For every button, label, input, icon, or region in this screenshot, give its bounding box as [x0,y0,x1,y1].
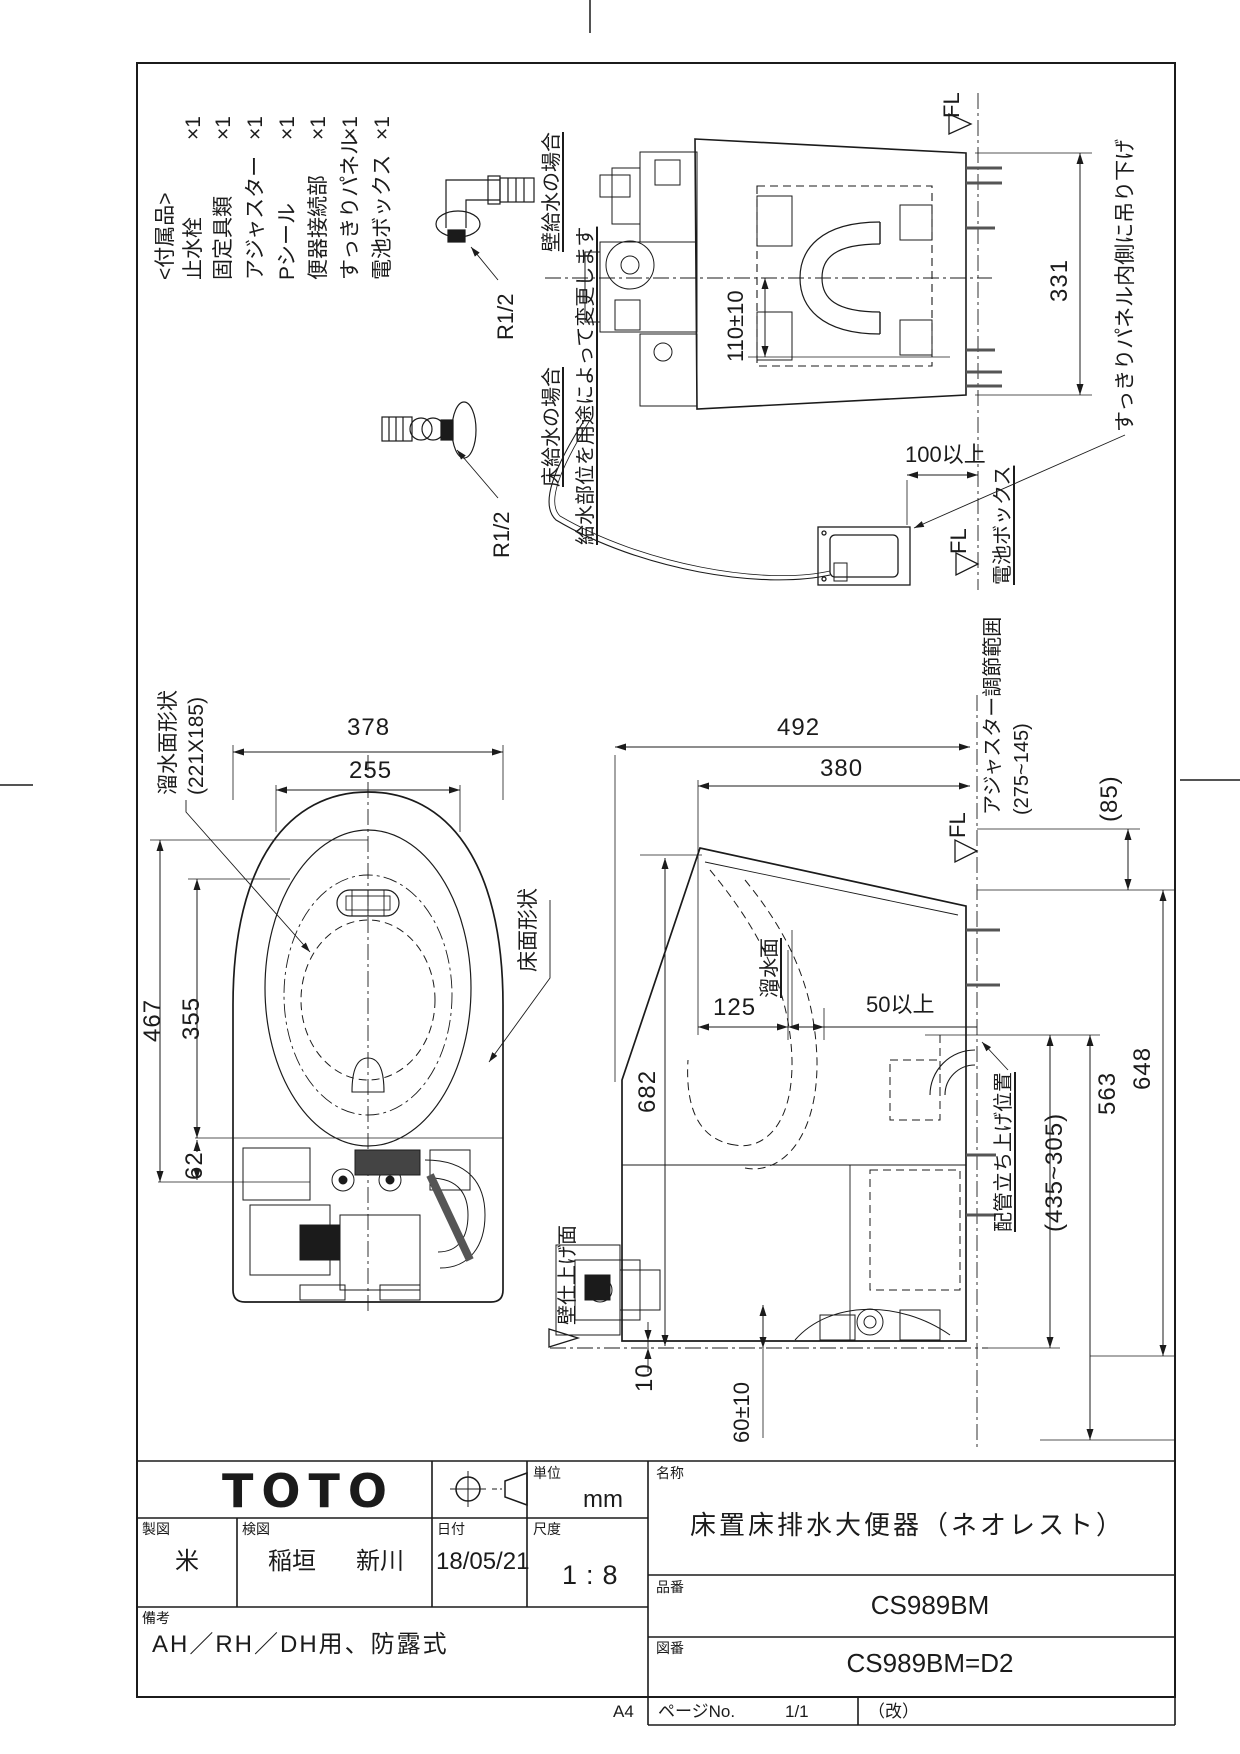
dwg-no-value: CS989BM=D2 [730,1650,1130,1676]
parts-list-item: アジャスター [245,156,266,280]
parts-list-qty: ×1 [372,116,393,140]
scale-value: 1:8 [562,1562,627,1589]
dim-380: 380 [820,757,863,781]
remarks-label: 備考 [142,1611,170,1625]
floor-supply-fitting [382,402,498,498]
parts-list-item: 固定具類 [213,196,234,280]
fl-marker-icon [956,553,978,575]
battery-box-label: 電池ボックス [993,466,1013,585]
dim-60: 60±10 [731,1382,753,1443]
parts-list-qty: ×1 [213,116,234,140]
thread-size-label: R1/2 [495,294,517,340]
drawing-sheet: <付属品> 止水栓 ×1 固定具類 ×1 アジャスター ×1 Pシール ×1 便… [0,0,1240,1754]
scale-label: 尺度 [533,1522,561,1536]
pipe-riser-label: 配管立ち上げ位置 [994,1072,1014,1232]
dim-255: 255 [349,759,392,783]
parts-list-qty: ×1 [308,116,329,140]
adjuster-range-value: (275~145) [1012,723,1032,815]
dim-125: 125 [713,996,756,1020]
parts-list-qty: ×1 [277,116,298,140]
thread-size-label: R1/2 [491,512,513,558]
fl-label: FL [947,812,969,838]
water-surface-size: (221X185) [186,697,207,795]
dim-492: 492 [777,716,820,740]
checker-label: 検図 [242,1522,270,1536]
toto-logo: TOTO [222,1468,395,1514]
plan-view-linework [150,745,550,1315]
page-label: ページNo. [658,1703,735,1720]
revision-label: （改） [868,1703,919,1720]
dim-355: 355 [180,997,204,1040]
floor-supply-label: 床給水の場合 [542,367,562,487]
wall-finish-label: 壁仕上げ面 [558,1225,578,1325]
floor-shape-label: 床面形状 [518,888,539,972]
dim-100: 100以上 [905,444,986,466]
parts-list-item: 便器接続部 [308,175,329,280]
drafter-value: 米 [175,1550,199,1574]
rear-view-linework [545,93,1125,590]
dim-62: 62 [183,1151,207,1180]
paper-size: A4 [613,1703,634,1720]
wall-supply-fitting [436,176,534,280]
dim-563: 563 [1096,1072,1120,1115]
wall-supply-label: 壁給水の場合 [542,132,562,252]
parts-list-item: 電池ボックス [372,155,393,280]
drafter-label: 製図 [142,1522,170,1536]
parts-list-item: すっきりパネル [340,134,361,280]
fl-label: FL [941,92,963,118]
remarks-value: AH／RH／DH用、防露式 [152,1633,449,1657]
dim-378: 378 [347,716,390,740]
dim-85: (85) [1098,775,1122,822]
dim-648: 648 [1131,1047,1155,1090]
unit-label: 単位 [533,1466,561,1480]
fl-label: FL [948,528,970,554]
part-no-value: CS989BM [730,1592,1130,1618]
projection-symbol-icon [450,1471,527,1507]
checker-name: 新川 [356,1550,404,1574]
parts-list-item: 止水栓 [183,217,204,280]
dim-331: 331 [1048,259,1072,302]
date-label: 日付 [437,1522,465,1536]
parts-list-header: <付属品> [155,192,176,280]
unit-value: mm [583,1488,623,1512]
water-surface-shape-label: 溜水面形状 [158,690,179,795]
name-value: 床置床排水大便器（ネオレスト） [690,1512,1125,1538]
wall-surface-marker-icon [549,1329,578,1347]
fl-marker-icon [955,840,977,862]
parts-list-qty: ×1 [245,116,266,140]
dim-50: 50以上 [866,994,934,1016]
supply-note: 給水部位を用途によって変更します [576,227,596,545]
dim-pipe-range: (435~305) [1043,1113,1067,1232]
date-value: 18/05/21 [436,1550,529,1574]
checker-name: 稲垣 [268,1550,316,1574]
page-value: 1/1 [785,1703,809,1720]
part-no-label: 品番 [656,1580,684,1594]
water-surface-label: 溜水面 [760,938,780,998]
dim-10: 10 [633,1363,657,1392]
dim-110: 110±10 [725,290,747,362]
dim-682: 682 [636,1070,660,1113]
parts-list-qty: ×1 [340,116,361,140]
parts-list-item: Pシール [277,203,298,280]
parts-list-qty: ×1 [183,116,204,140]
dwg-no-label: 図番 [656,1641,684,1655]
adjuster-range-label: アジャスター調節範囲 [983,617,1003,815]
dim-467: 467 [141,999,165,1042]
hang-note: すっきりパネル内側に吊り下げ [1115,139,1136,432]
name-label: 名称 [656,1466,684,1480]
